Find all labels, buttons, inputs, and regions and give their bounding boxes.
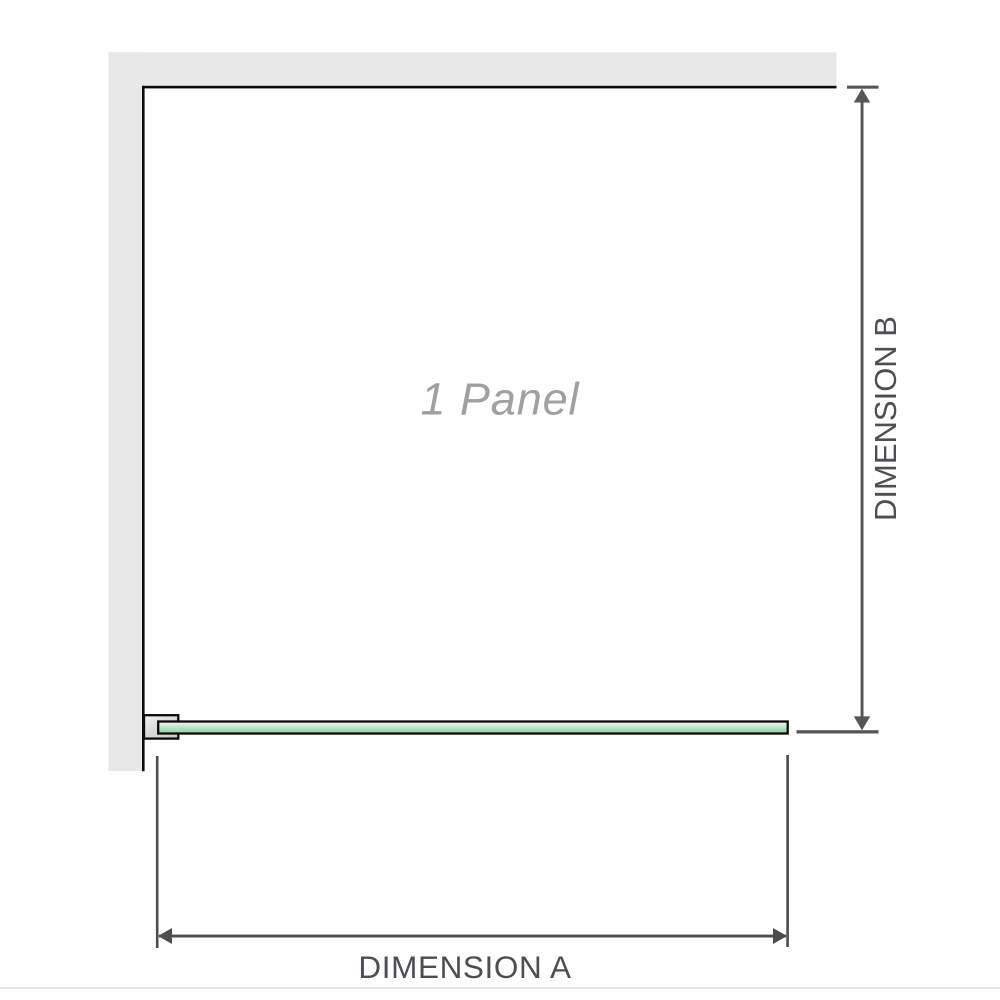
svg-text:1 Panel: 1 Panel bbox=[421, 374, 581, 425]
svg-text:DIMENSION A: DIMENSION A bbox=[358, 949, 571, 985]
svg-text:DIMENSION B: DIMENSION B bbox=[868, 316, 903, 521]
